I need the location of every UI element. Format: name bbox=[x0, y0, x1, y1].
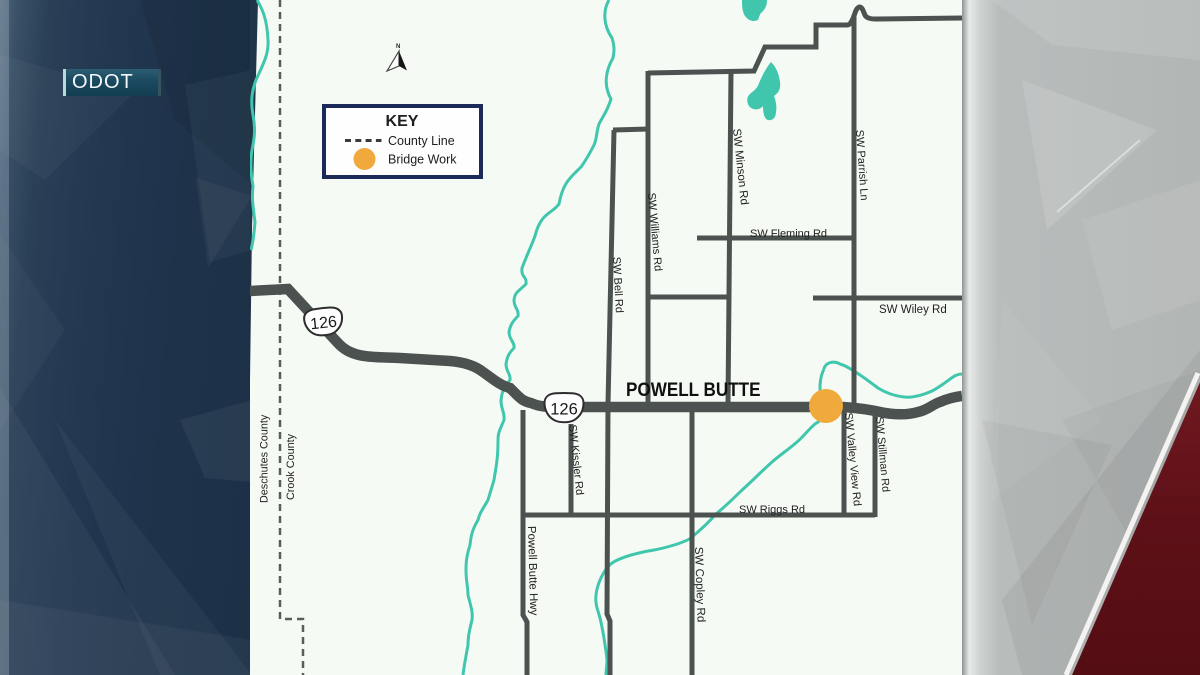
svg-text:SW Riggs Rd: SW Riggs Rd bbox=[739, 504, 805, 516]
svg-text:N: N bbox=[396, 44, 400, 50]
svg-text:Deschutes County: Deschutes County bbox=[259, 414, 271, 503]
svg-text:SW Wiley Rd: SW Wiley Rd bbox=[879, 304, 947, 316]
svg-text:POWELL BUTTE: POWELL BUTTE bbox=[626, 379, 760, 400]
svg-text:126: 126 bbox=[550, 401, 578, 419]
svg-text:Crook County: Crook County bbox=[285, 433, 297, 500]
svg-text:Powell Butte Hwy: Powell Butte Hwy bbox=[525, 526, 539, 616]
svg-text:SW Minson Rd: SW Minson Rd bbox=[730, 128, 750, 206]
svg-text:KEY: KEY bbox=[386, 113, 419, 130]
svg-text:Bridge Work: Bridge Work bbox=[388, 153, 457, 167]
svg-text:County Line: County Line bbox=[388, 134, 455, 148]
svg-text:126: 126 bbox=[309, 314, 337, 334]
svg-text:SW Fleming Rd: SW Fleming Rd bbox=[750, 228, 827, 240]
